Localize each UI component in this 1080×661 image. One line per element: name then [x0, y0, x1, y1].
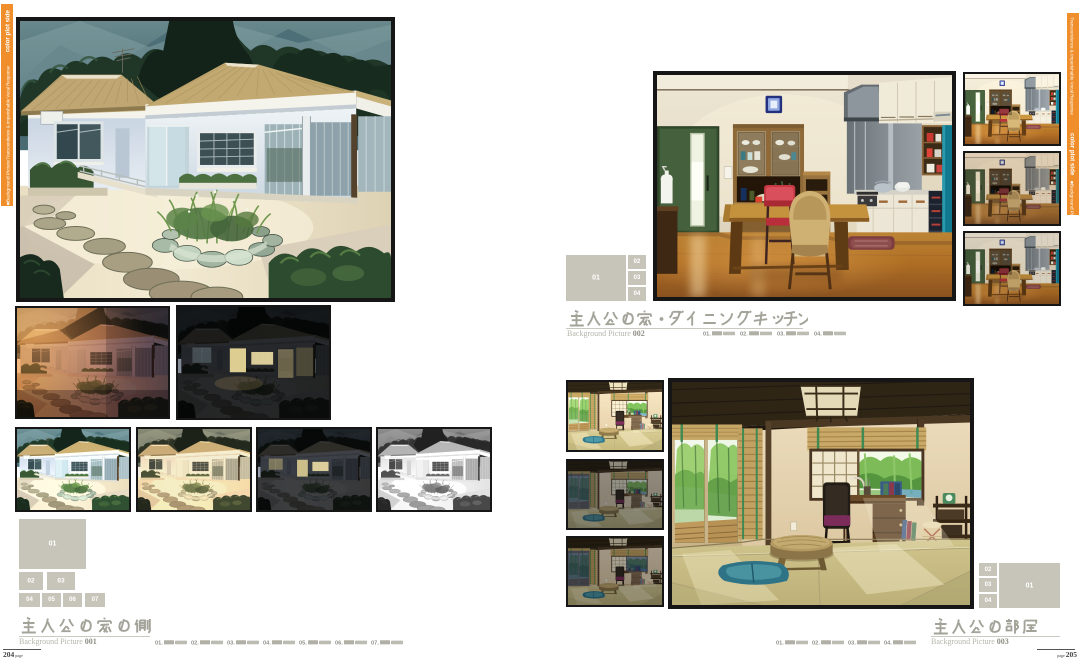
svg-text:color plot side: color plot side: [5, 9, 12, 52]
svg-text:■Background Picture: ■Background Picture: [5, 160, 11, 205]
svg-text:color plot side: color plot side: [1069, 133, 1076, 176]
svg-text:■Background Picture: ■Background Picture: [1069, 181, 1075, 215]
svg-text:Transcendence & Imperishable V: Transcendence & Imperishable Vocal Respo…: [5, 65, 10, 159]
svg-text:Transcendence & Imperishable V: Transcendence & Imperishable Vocal Respo…: [1070, 17, 1075, 115]
